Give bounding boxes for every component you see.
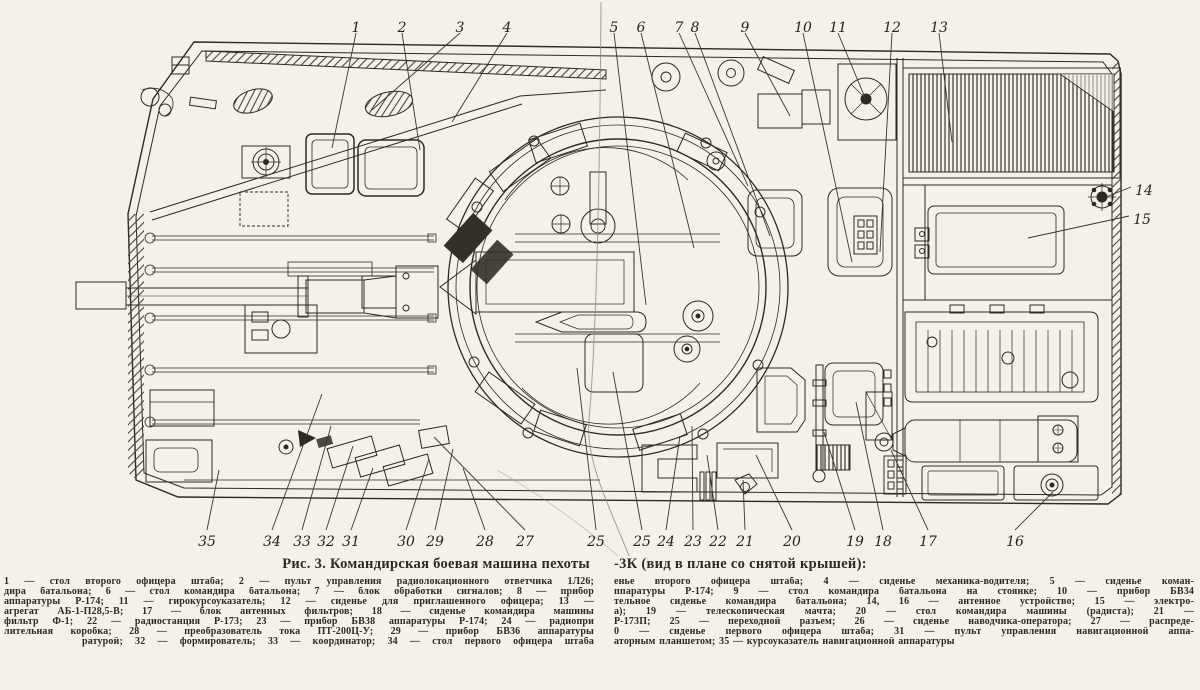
callout-number: 12 — [883, 20, 901, 36]
callout-leader-line — [332, 33, 356, 148]
callout-leader-line — [838, 33, 866, 100]
callout-number: 17 — [919, 534, 937, 550]
legend-line-right: 0 — сиденье первого офицера штаба; 31 — … — [600, 627, 1200, 637]
callout-leader-line — [207, 470, 219, 530]
legend-line-right: тельное сиденье командира батальона; 14,… — [600, 597, 1200, 607]
callout-number: 10 — [794, 20, 812, 36]
callout-number: 23 — [683, 534, 702, 550]
legend-line: 1 — стол второго офицера штаба; 2 — пуль… — [0, 577, 1200, 587]
page-fold — [497, 2, 629, 556]
caption-title-left: Рис. 3. Командирская боевая машина пехот… — [0, 556, 600, 573]
callout-leader-line — [1015, 492, 1053, 530]
callout-number: 8 — [691, 20, 700, 36]
torsion-bars — [145, 233, 436, 427]
callout-number: 16 — [1006, 534, 1024, 550]
operator-seat — [757, 368, 805, 432]
muzzle-block — [76, 282, 126, 309]
callout-number: 18 — [874, 534, 892, 550]
callout-number: 32 — [317, 534, 335, 550]
callout-number: 3 — [456, 20, 465, 36]
legend-line-left: агрегат АБ-1-П28,5-В; 17 — блок антенных… — [0, 607, 600, 617]
legend-line-left: фильтр Ф-1; 22 — радиостанция Р-173; 23 … — [0, 617, 600, 627]
caption-title-row: Рис. 3. Командирская боевая машина пехот… — [0, 556, 1200, 573]
callout-leader-line — [641, 33, 694, 248]
callout-number: 14 — [1135, 183, 1153, 199]
legend-line: фильтр Ф-1; 22 — радиостанция Р-173; 23 … — [0, 617, 1200, 627]
radist-table — [717, 443, 778, 478]
legend-line: аппаратуры Р-174; 11 — гирокурсоуказател… — [0, 597, 1200, 607]
callout-number: 31 — [342, 534, 360, 550]
caption-title-right: -3К (вид в плане со снятой крышей): — [600, 556, 1200, 573]
callout-number: 19 — [846, 534, 864, 550]
callout-leader-line — [434, 437, 525, 530]
antenna-device — [928, 206, 1064, 274]
scanned-figure-page: 1234567891011121314151617181920212223242… — [0, 0, 1200, 690]
engine-compartment — [866, 68, 1120, 500]
turret-ring — [448, 117, 788, 457]
callout-number: 22 — [708, 534, 727, 550]
callout-leader-line — [856, 402, 883, 530]
callout-number: 15 — [1133, 212, 1151, 228]
callout-leader-line — [695, 33, 770, 236]
callout-leader-line — [406, 459, 429, 530]
callout-number: 30 — [397, 534, 415, 550]
callout-number: 9 — [741, 20, 750, 36]
callout-number: 13 — [930, 20, 948, 36]
callout-number: 4 — [502, 20, 512, 36]
legend-line-right: енье второго офицера штаба; 4 — сиденье … — [600, 577, 1200, 587]
callout-number: 6 — [637, 20, 646, 36]
callout-number: 34 — [263, 534, 281, 550]
legend-line-right: ппаратуры Р-174; 9 — стол командира бата… — [600, 587, 1200, 597]
legend-line-left: ратурой; 32 — формирователь; 33 — коорди… — [0, 637, 600, 647]
callout-number: 29 — [425, 534, 444, 550]
legend-line-left: аппаратуры Р-174; 11 — гирокурсоуказател… — [0, 597, 600, 607]
callout-number: 27 — [515, 534, 534, 550]
legend-line: агрегат АБ-1-П28,5-В; 17 — блок антенных… — [0, 607, 1200, 617]
callout-leader-line — [692, 426, 693, 530]
callout-leader-line — [613, 372, 642, 530]
legend-line-left: дира батальона; 6 — стол командира батал… — [0, 587, 600, 597]
callout-number: 25 — [586, 534, 605, 550]
callout-number: 20 — [782, 534, 801, 550]
legend-line: лительная коробка; 28 — преобразователь … — [0, 627, 1200, 637]
callout-number: 2 — [397, 20, 407, 36]
callout-leader-line — [743, 480, 745, 530]
callout-number: 24 — [656, 534, 675, 550]
callout-number: 11 — [829, 20, 847, 36]
callout-leader-line — [272, 394, 322, 530]
callout-number: 25 — [632, 534, 651, 550]
left-wall-hatch — [128, 214, 144, 479]
callout-number: 28 — [475, 534, 494, 550]
callout-number: 7 — [675, 20, 684, 36]
callout-number: 33 — [293, 534, 311, 550]
fold-line — [589, 2, 629, 556]
callout-number: 21 — [735, 534, 754, 550]
callout-leader-line — [745, 33, 790, 116]
callout-number: 5 — [610, 20, 619, 36]
legend-line: ратурой; 32 — формирователь; 33 — коорди… — [0, 637, 1200, 647]
callout-leader-line — [614, 33, 646, 305]
callout-leader-line — [880, 33, 892, 252]
gun-mantlet — [396, 266, 438, 318]
legend-line: дира батальона; 6 — стол командира батал… — [0, 587, 1200, 597]
generator-unit — [875, 416, 1078, 462]
legend-line-right: а); 19 — телескопическая мачта; 20 — сто… — [600, 607, 1200, 617]
figure-caption: Рис. 3. Командирская боевая машина пехот… — [0, 553, 1200, 647]
converter-cluster — [279, 430, 433, 486]
figure-legend: 1 — стол второго офицера штаба; 2 — пуль… — [0, 577, 1200, 647]
floor-hatch-bracket — [642, 445, 697, 492]
legend-line-left: лительная коробка; 28 — преобразователь … — [0, 627, 600, 637]
legend-line-left: 1 — стол второго офицера штаба; 2 — пуль… — [0, 577, 600, 587]
legend-line-right: аторным планшетом; 35 — курсоуказатель н… — [600, 637, 1200, 647]
vehicle-plan-drawing: 1234567891011121314151617181920212223242… — [0, 0, 1200, 556]
callout-number: 1 — [352, 20, 361, 36]
turret-interior — [440, 123, 727, 450]
legend-line-right: Р-173П; 25 — переходной разъем; 26 — сид… — [600, 617, 1200, 627]
engine-block — [905, 305, 1098, 402]
callout-number: 35 — [198, 534, 216, 550]
front-left-equipment — [141, 57, 570, 486]
